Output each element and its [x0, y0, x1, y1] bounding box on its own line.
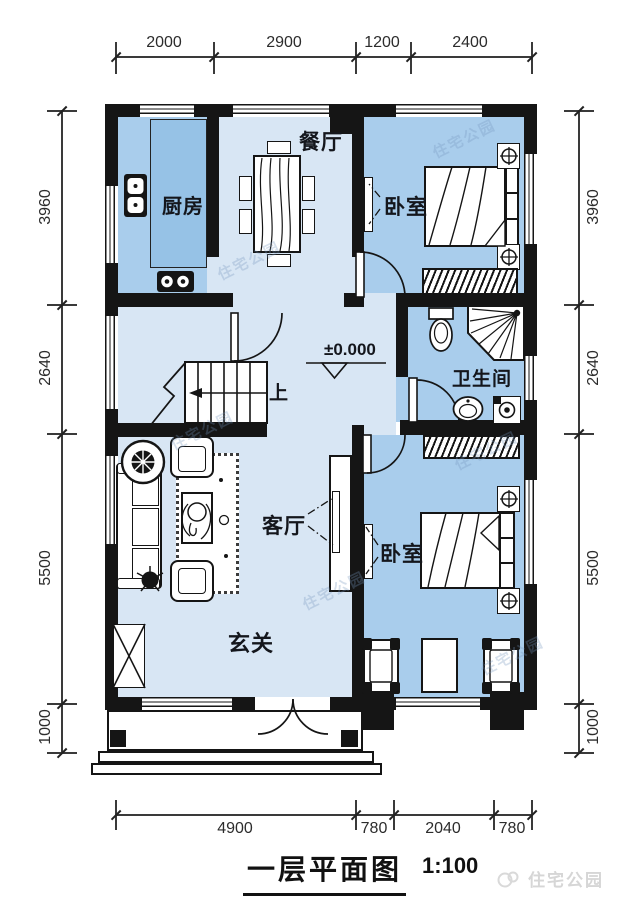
- sofa-cushion: [132, 508, 159, 546]
- dining-chair: [239, 176, 252, 201]
- shoe-cabinet: [113, 624, 145, 688]
- dining-chair: [302, 209, 315, 234]
- entrance-opening: [255, 697, 330, 710]
- brand-logo-icon: [496, 868, 522, 890]
- label-kitchen: 厨房: [162, 190, 204, 219]
- dining-chair: [302, 176, 315, 201]
- bed-headboard: [499, 512, 515, 589]
- brand-name: 住宅公园: [528, 866, 604, 891]
- wall-bedroom-top-bottom: [396, 293, 537, 307]
- window-living-front: [142, 697, 232, 710]
- dim-line-bottom: [115, 814, 531, 816]
- nightstand: [497, 486, 520, 512]
- tv-bedroom-top: [364, 177, 373, 232]
- window-bedroom-bottom-front: [396, 697, 480, 710]
- porch-column-right: [341, 730, 358, 747]
- dim-bottom-3: 2040: [425, 820, 461, 838]
- tv-bedroom-bottom: [364, 524, 373, 579]
- dim-bottom-2: 780: [361, 820, 388, 838]
- label-living: 客厅: [262, 510, 306, 540]
- dining-chair: [239, 209, 252, 234]
- window-kitchen-top: [140, 104, 194, 117]
- floor-corridor: [364, 293, 396, 435]
- label-stair-up: 上: [269, 378, 289, 405]
- coffee-table: [181, 492, 213, 544]
- window-right-bedroom-bottom: [524, 480, 537, 584]
- nightstand: [497, 143, 520, 169]
- porch-column-left: [110, 730, 126, 747]
- dim-right-3: 5500: [585, 550, 603, 586]
- sofa-armrest: [117, 463, 160, 474]
- wall-bedroom-bottom-left: [352, 425, 364, 697]
- window-bedroom-top: [396, 104, 482, 117]
- kitchen-stove: [157, 271, 194, 292]
- window-right-bathroom: [524, 356, 537, 400]
- pier-bottom-right: [490, 692, 524, 730]
- dim-right-2: 2640: [585, 350, 603, 386]
- dim-top-2: 2900: [266, 34, 302, 52]
- label-bedroom-bottom: 卧室: [380, 538, 424, 568]
- bed: [424, 166, 506, 247]
- washing-machine: [493, 396, 521, 424]
- armchair-seat: [178, 568, 206, 594]
- kitchen-sink: [124, 174, 147, 217]
- title-scale: 1:100: [422, 853, 478, 878]
- dining-table: [253, 155, 301, 253]
- window-left-kitchen: [105, 186, 118, 263]
- wall-bedroom-top-left: [352, 117, 364, 257]
- dim-left-3: 5500: [37, 550, 55, 586]
- wall-kitchen-right: [207, 117, 219, 257]
- wardrobe: [422, 268, 518, 295]
- window-dining-top: [233, 104, 329, 117]
- floor-plan-canvas: 餐厅 厨房 卧室 卫生间 客厅 卧室 玄关 上 ±0.000 2000 2900…: [0, 0, 640, 911]
- tv-living: [332, 491, 340, 553]
- dim-left-4: 1000: [37, 709, 55, 745]
- dim-right-1: 3960: [585, 189, 603, 225]
- wall-kitchen-bottom: [105, 293, 233, 307]
- dim-bottom-1: 4900: [217, 820, 253, 838]
- pier-bottom-left: [362, 692, 394, 730]
- dim-line-top: [115, 56, 531, 58]
- label-bedroom-top: 卧室: [384, 191, 428, 221]
- nightstand: [497, 244, 520, 270]
- dim-left-2: 2640: [37, 350, 55, 386]
- label-dining: 餐厅: [299, 126, 343, 156]
- sofa-armrest: [117, 578, 160, 589]
- wall-bathroom-left: [396, 305, 408, 377]
- label-elevation: ±0.000: [324, 340, 376, 360]
- dim-top-4: 2400: [452, 34, 488, 52]
- bed-headboard: [505, 166, 519, 247]
- label-bathroom: 卫生间: [452, 364, 512, 391]
- brand-footer: 住宅公园: [496, 866, 604, 891]
- porch-step-1: [98, 751, 374, 763]
- dim-top-3: 1200: [364, 34, 400, 52]
- title-text: 一层平面图: [243, 848, 406, 896]
- dim-left-1: 3960: [37, 189, 55, 225]
- side-table: [421, 638, 458, 693]
- dim-top-1: 2000: [146, 34, 182, 52]
- label-foyer: 玄关: [228, 626, 274, 658]
- dim-right-4: 1000: [585, 709, 603, 745]
- bed: [420, 512, 501, 589]
- dim-bottom-4: 780: [499, 820, 526, 838]
- window-left-stairs: [105, 316, 118, 409]
- dining-chair: [267, 141, 291, 154]
- nightstand: [497, 588, 520, 614]
- wall-stub-hall: [344, 293, 364, 307]
- window-right-bedroom-top: [524, 154, 537, 244]
- drawing-title: 一层平面图1:100: [243, 848, 478, 896]
- porch-platform: [107, 710, 363, 751]
- porch-step-2: [91, 763, 382, 775]
